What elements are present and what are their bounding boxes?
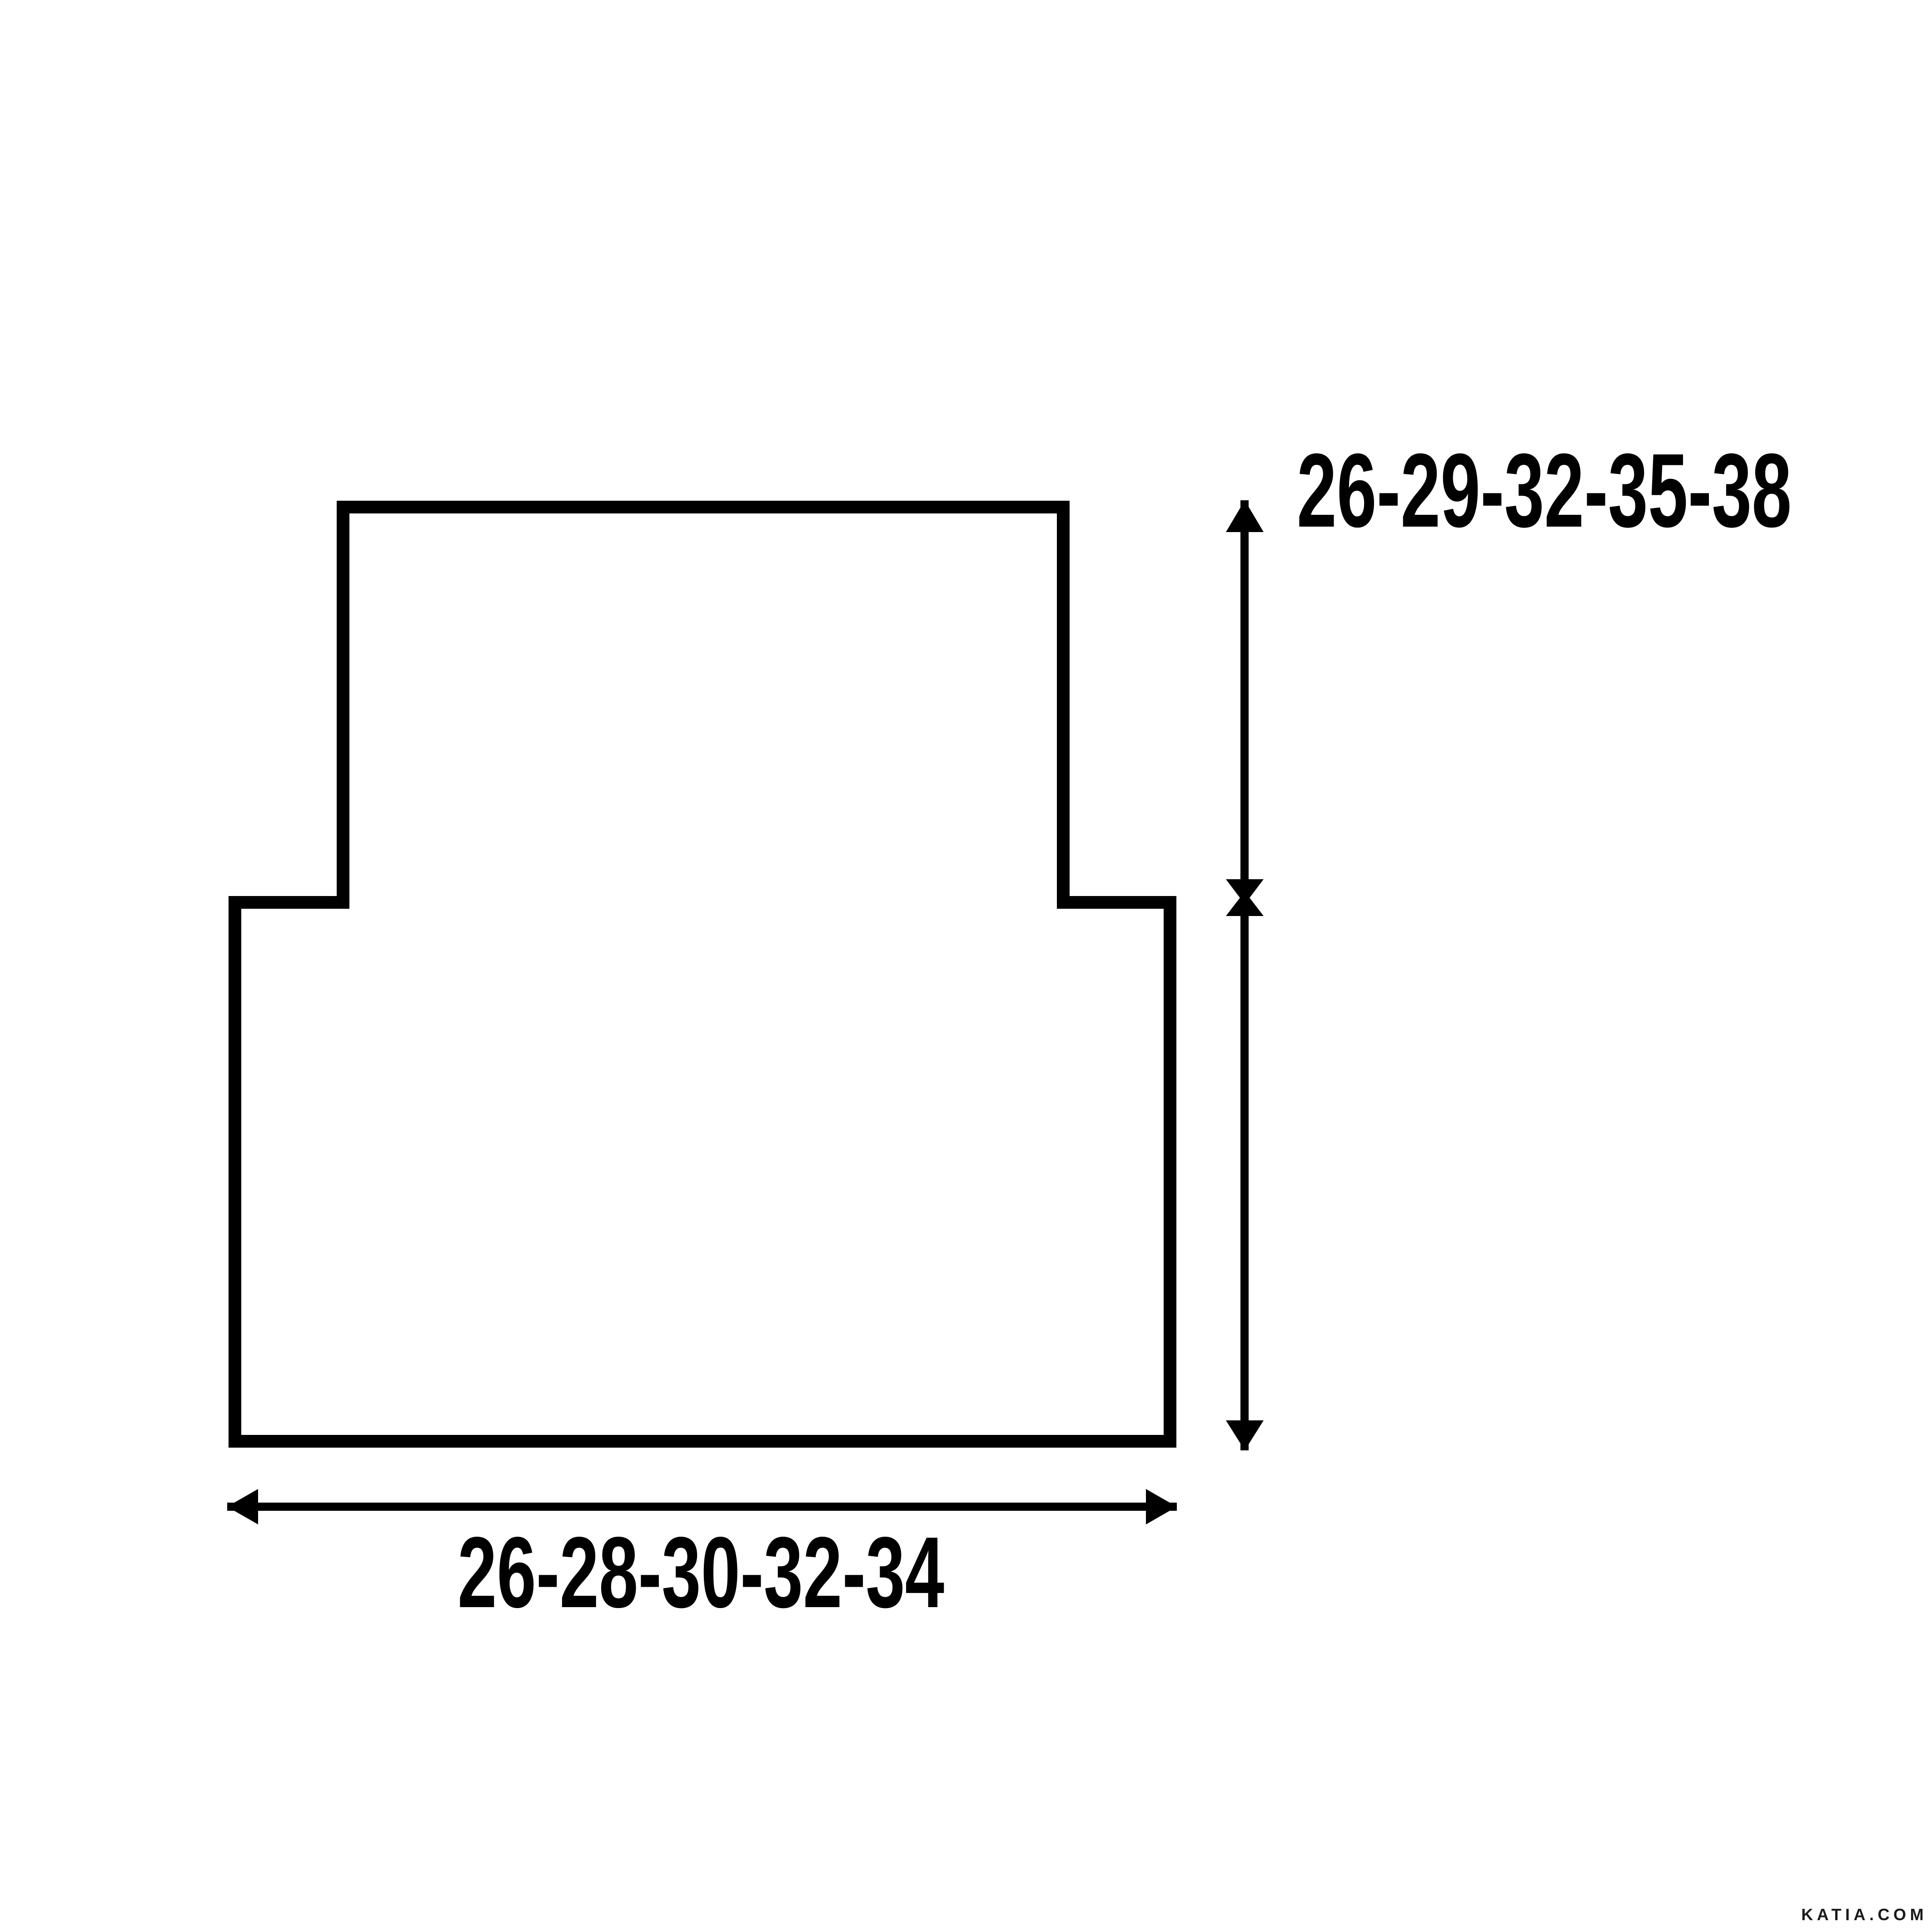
svg-text:KATIA.COM: KATIA.COM bbox=[1801, 1905, 1927, 1924]
svg-text:26-29-32-35-38: 26-29-32-35-38 bbox=[1297, 432, 1792, 549]
svg-text:26-28-30-32-34: 26-28-30-32-34 bbox=[458, 1516, 944, 1629]
